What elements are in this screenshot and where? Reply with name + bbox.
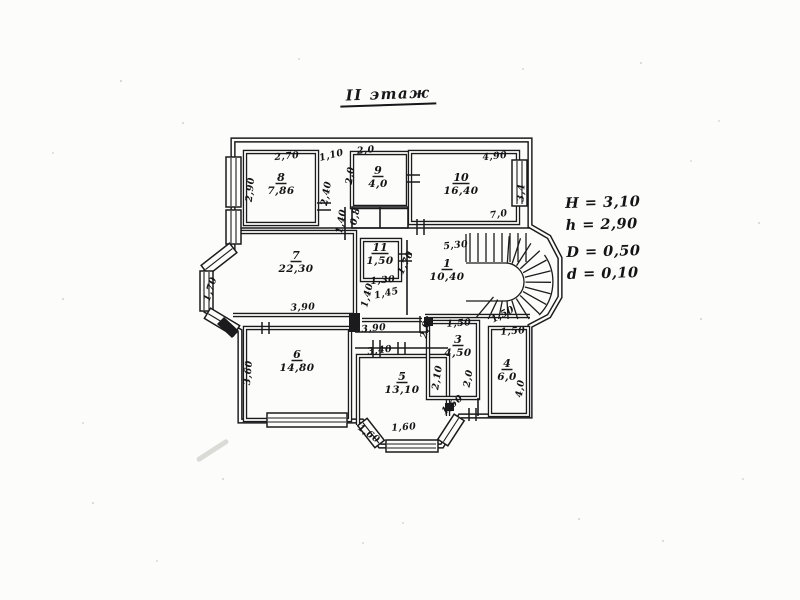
room-area: 13,10 [385, 384, 420, 396]
room-number: 10 [453, 171, 469, 184]
room-label: 722,30 [278, 249, 314, 275]
room-number: 3 [454, 333, 462, 346]
room-label: 110,40 [430, 257, 465, 283]
room-area: 4,0 [368, 178, 388, 190]
room-area: 4,50 [444, 347, 471, 359]
window-bay-left [201, 243, 237, 275]
dimension-label: 3,90 [290, 301, 315, 313]
dimension-label: 1,50 [500, 325, 525, 338]
window-bay-bottom-3 [438, 414, 464, 446]
room-label: 614,80 [280, 348, 315, 374]
dimension-label: 1,45 [373, 286, 399, 302]
dimension-label: 5,30 [443, 239, 469, 253]
room-number: 9 [374, 164, 382, 177]
window-room6-bottom [267, 413, 347, 427]
room-number: 4 [503, 357, 511, 370]
room-label: 94,0 [368, 164, 388, 190]
room-label: 46,0 [497, 357, 517, 383]
dimension-label: 2,10 [430, 365, 445, 392]
room-label: 1016,40 [444, 171, 479, 197]
room-area: 7,86 [267, 185, 294, 197]
dimension-label: 2,0 [461, 369, 475, 389]
window-left-1 [226, 157, 241, 207]
room-number: 1 [443, 257, 451, 270]
dimension-label: 2,90 [244, 177, 258, 204]
dimension-label: 2,0 [344, 166, 358, 186]
dimension-label: 1,50 [446, 317, 471, 330]
room-area: 10,40 [430, 271, 465, 283]
dimension-label: 2,70 [273, 150, 300, 163]
room-number: 11 [372, 241, 387, 254]
room-number: 7 [292, 249, 300, 262]
dimension-label: 3,4 [515, 184, 527, 202]
dimension-label: 7,0 [489, 208, 508, 221]
room-label: 87,86 [267, 171, 294, 197]
room-area: 16,40 [444, 185, 479, 197]
room-number: 5 [398, 370, 406, 383]
dimension-label: 2,0 [355, 144, 375, 157]
dimension-label: 2,40 [319, 180, 334, 207]
room-number: 8 [277, 171, 285, 184]
dimension-label: 3,90 [361, 322, 387, 335]
room-number: 6 [293, 348, 301, 361]
dimension-label: 1,60 [391, 421, 416, 434]
room-area: 22,30 [278, 263, 314, 275]
dimension-label: 3,60 [242, 360, 255, 386]
dimension-label: 4,90 [482, 150, 508, 164]
window-left-2 [226, 210, 241, 244]
window-bay-bottom-2 [386, 440, 438, 452]
dimension-label: 1,10 [318, 147, 345, 164]
dimension-label: 2,0 [418, 320, 432, 340]
dimension-label: 4,0 [514, 379, 527, 398]
scanned-floor-plan-sheet: II этаж H = 3,10h = 2,90D = 0,50d = 0,10 [0, 0, 800, 600]
dimension-label: 0,8 [348, 207, 362, 227]
room-area: 14,80 [280, 362, 315, 374]
floor-plan-svg: 87,8694,01016,40722,30111,50110,40614,80… [0, 0, 800, 600]
room-label: 111,50 [366, 241, 393, 267]
room-area: 6,0 [497, 371, 517, 383]
room-area: 1,50 [366, 255, 393, 267]
room-label: 34,50 [444, 333, 471, 359]
room-label: 513,10 [385, 370, 420, 396]
